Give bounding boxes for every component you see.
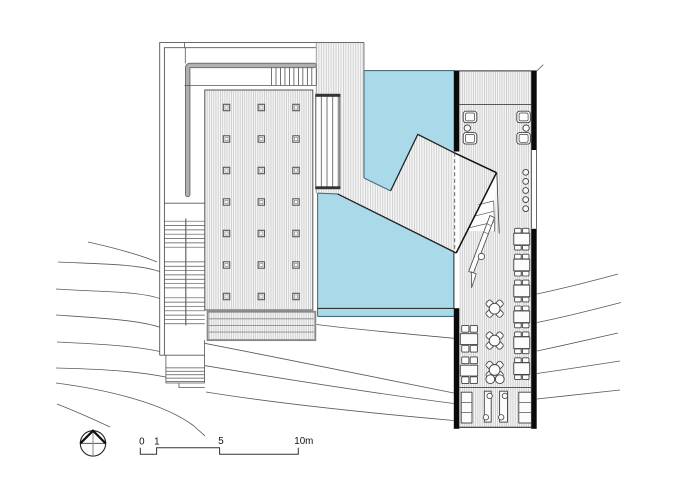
svg-text:5: 5 (218, 436, 224, 447)
svg-text:1: 1 (154, 436, 159, 447)
svg-text:0: 0 (139, 436, 145, 447)
svg-text:10m: 10m (294, 436, 313, 447)
